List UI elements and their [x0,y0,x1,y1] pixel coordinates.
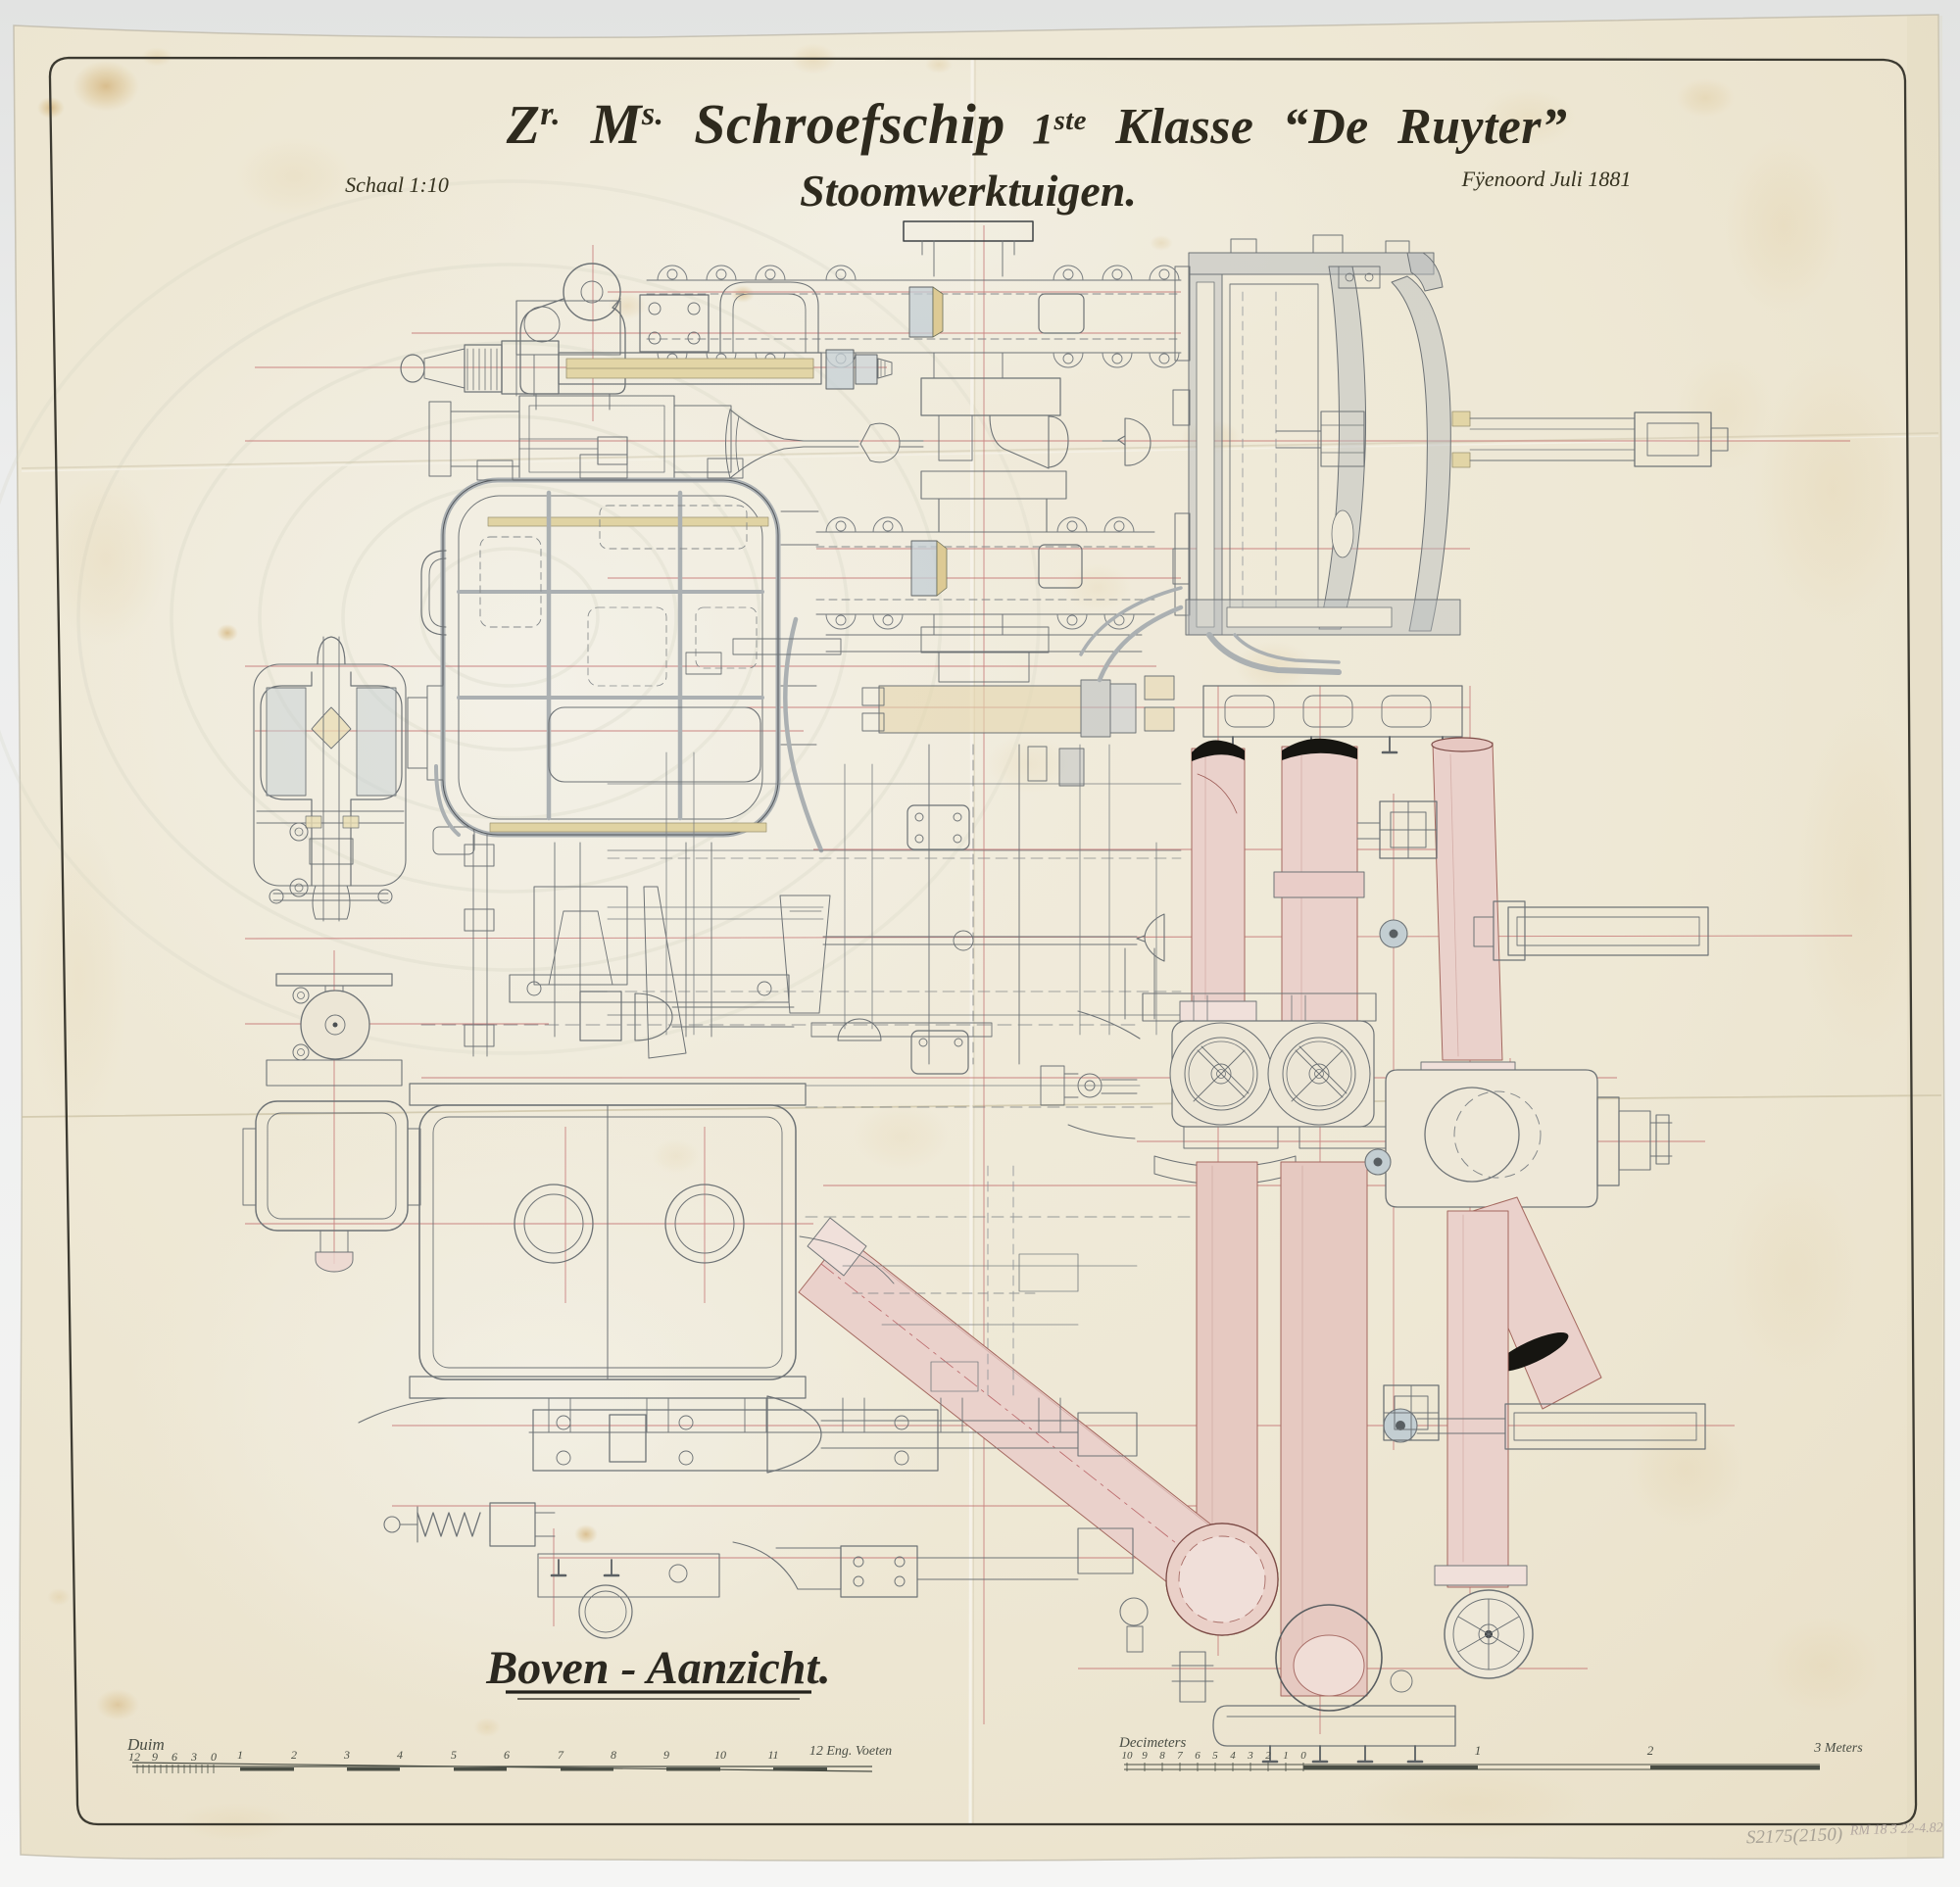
svg-text:1: 1 [237,1748,243,1762]
svg-text:7: 7 [1177,1750,1183,1762]
svg-text:10: 10 [714,1748,726,1762]
svg-text:9: 9 [152,1750,158,1764]
svg-text:1: 1 [1283,1750,1289,1762]
svg-text:9: 9 [1142,1750,1148,1762]
svg-text:2: 2 [291,1748,297,1762]
svg-text:4: 4 [1230,1750,1236,1762]
svg-text:7: 7 [558,1748,564,1762]
svg-text:12 Eng. Voeten: 12 Eng. Voeten [809,1744,892,1759]
svg-text:3: 3 [190,1750,197,1764]
svg-text:2: 2 [1265,1750,1271,1762]
svg-text:5: 5 [451,1748,457,1762]
svg-text:2: 2 [1647,1743,1654,1758]
svg-text:4: 4 [397,1748,403,1762]
svg-text:Boven - Aanzicht.: Boven - Aanzicht. [485,1642,831,1694]
svg-text:3: 3 [343,1748,350,1762]
svg-text:6: 6 [1195,1750,1200,1762]
svg-text:0: 0 [211,1750,217,1764]
svg-text:Stoomwerktuigen.: Stoomwerktuigen. [800,166,1137,216]
svg-text:0: 0 [1300,1750,1306,1762]
svg-text:Fÿenoord Juli 1881: Fÿenoord Juli 1881 [1461,167,1632,191]
svg-text:11: 11 [767,1748,778,1762]
svg-text:8: 8 [1159,1750,1165,1762]
svg-text:Decimeters: Decimeters [1118,1735,1186,1751]
svg-text:1: 1 [1475,1743,1482,1758]
svg-text:6: 6 [171,1750,177,1764]
svg-text:3 Meters: 3 Meters [1813,1741,1863,1756]
svg-text:9: 9 [663,1748,669,1762]
svg-text:5: 5 [1212,1750,1218,1762]
svg-text:Schaal 1:10: Schaal 1:10 [345,172,449,197]
svg-text:8: 8 [611,1748,616,1762]
svg-text:6: 6 [504,1748,510,1762]
svg-text:12: 12 [128,1750,140,1764]
svg-text:10: 10 [1122,1750,1134,1762]
svg-text:S2175(2150): S2175(2150) [1746,1824,1843,1848]
svg-text:3: 3 [1247,1750,1253,1762]
